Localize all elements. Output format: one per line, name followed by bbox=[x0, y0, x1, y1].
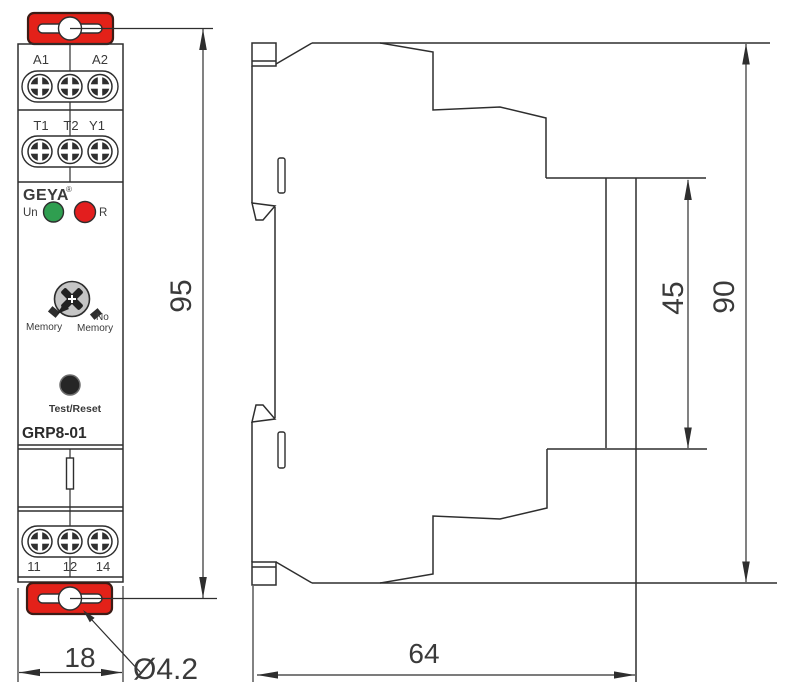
release-tab-lower bbox=[252, 405, 275, 422]
terminal-screw bbox=[88, 140, 112, 164]
terminal-screw bbox=[88, 530, 112, 554]
front-view: A1 A2 T1 T2 Y1 bbox=[18, 13, 123, 614]
memory-selector-knob[interactable] bbox=[48, 282, 102, 320]
release-tab-upper bbox=[252, 203, 275, 220]
side-vent-slot-lower bbox=[278, 432, 285, 468]
test-reset-button[interactable] bbox=[60, 375, 80, 395]
dimension-value: 45 bbox=[657, 281, 690, 314]
dimension-hole-diameter: Ø4.2 bbox=[83, 610, 198, 686]
terminal-screw bbox=[28, 75, 52, 99]
dimensional-drawing: A1 A2 T1 T2 Y1 bbox=[0, 0, 790, 694]
arrowhead-left bbox=[257, 671, 278, 678]
side-view bbox=[252, 43, 777, 682]
arrowhead-left bbox=[19, 669, 40, 676]
power-led-label: Un bbox=[23, 207, 38, 219]
terminal-label: A1 bbox=[33, 52, 49, 67]
terminal-row-t: T1 T2 Y1 bbox=[22, 118, 118, 167]
side-vent-slot-upper bbox=[278, 158, 285, 193]
knob-left-label: Memory bbox=[26, 322, 62, 333]
terminal-screw bbox=[88, 75, 112, 99]
brand-logo: GEYA bbox=[23, 187, 69, 204]
arrowhead-right bbox=[614, 671, 635, 678]
terminal-label: 12 bbox=[63, 559, 77, 574]
terminal-label: T1 bbox=[33, 118, 48, 133]
relay-led-indicator bbox=[75, 202, 96, 223]
terminal-row-output: 11 12 14 bbox=[22, 526, 118, 574]
power-led-indicator bbox=[44, 202, 64, 222]
arrowhead-down bbox=[684, 428, 692, 449]
terminal-screw bbox=[28, 140, 52, 164]
dimension-value: 18 bbox=[64, 642, 95, 673]
dimension-recess-height: 45 bbox=[657, 179, 692, 449]
drawing-svg: A1 A2 T1 T2 Y1 bbox=[0, 0, 790, 694]
seal-slot bbox=[67, 458, 74, 489]
arrowhead-down bbox=[742, 562, 750, 583]
dimension-rear-height: 90 bbox=[708, 44, 750, 583]
relay-led-label: R bbox=[99, 207, 107, 219]
dimension-value: 64 bbox=[408, 638, 439, 669]
test-reset-label: Test/Reset bbox=[49, 403, 102, 415]
terminal-label: T2 bbox=[63, 118, 78, 133]
arrowhead-up bbox=[199, 29, 207, 50]
knob-right-label-line1: No bbox=[96, 312, 109, 323]
side-top-step-profile bbox=[380, 43, 546, 178]
dimension-depth: 64 bbox=[253, 586, 635, 682]
arrowhead-up bbox=[742, 44, 750, 65]
side-bottom-chamfer bbox=[276, 562, 312, 583]
side-front-edge bbox=[252, 66, 275, 562]
arrowhead-up bbox=[684, 179, 692, 200]
terminal-label: A2 bbox=[92, 52, 108, 67]
registered-mark: ® bbox=[66, 185, 72, 194]
side-top-clip-end bbox=[252, 43, 276, 66]
side-bottom-step-profile bbox=[380, 449, 547, 583]
arrowhead-down bbox=[199, 577, 207, 598]
model-number: GRP8-01 bbox=[22, 425, 87, 442]
dimension-value: 95 bbox=[165, 279, 198, 312]
terminal-screw bbox=[58, 530, 82, 554]
knob-right-label-line2: Memory bbox=[77, 323, 113, 334]
dimension-value: 90 bbox=[708, 280, 741, 313]
arrowhead-right bbox=[101, 669, 122, 676]
side-top-chamfer bbox=[276, 43, 312, 64]
terminal-screw bbox=[58, 75, 82, 99]
terminal-screw bbox=[28, 530, 52, 554]
side-bottom-clip-end bbox=[252, 562, 276, 585]
terminal-screw bbox=[58, 140, 82, 164]
terminal-label: 11 bbox=[27, 559, 41, 574]
dimensions: 95 18 Ø4.2 64 45 bbox=[18, 29, 750, 687]
dimension-value: Ø4.2 bbox=[133, 653, 198, 686]
terminal-label: Y1 bbox=[89, 118, 105, 133]
terminal-label: 14 bbox=[96, 559, 110, 574]
